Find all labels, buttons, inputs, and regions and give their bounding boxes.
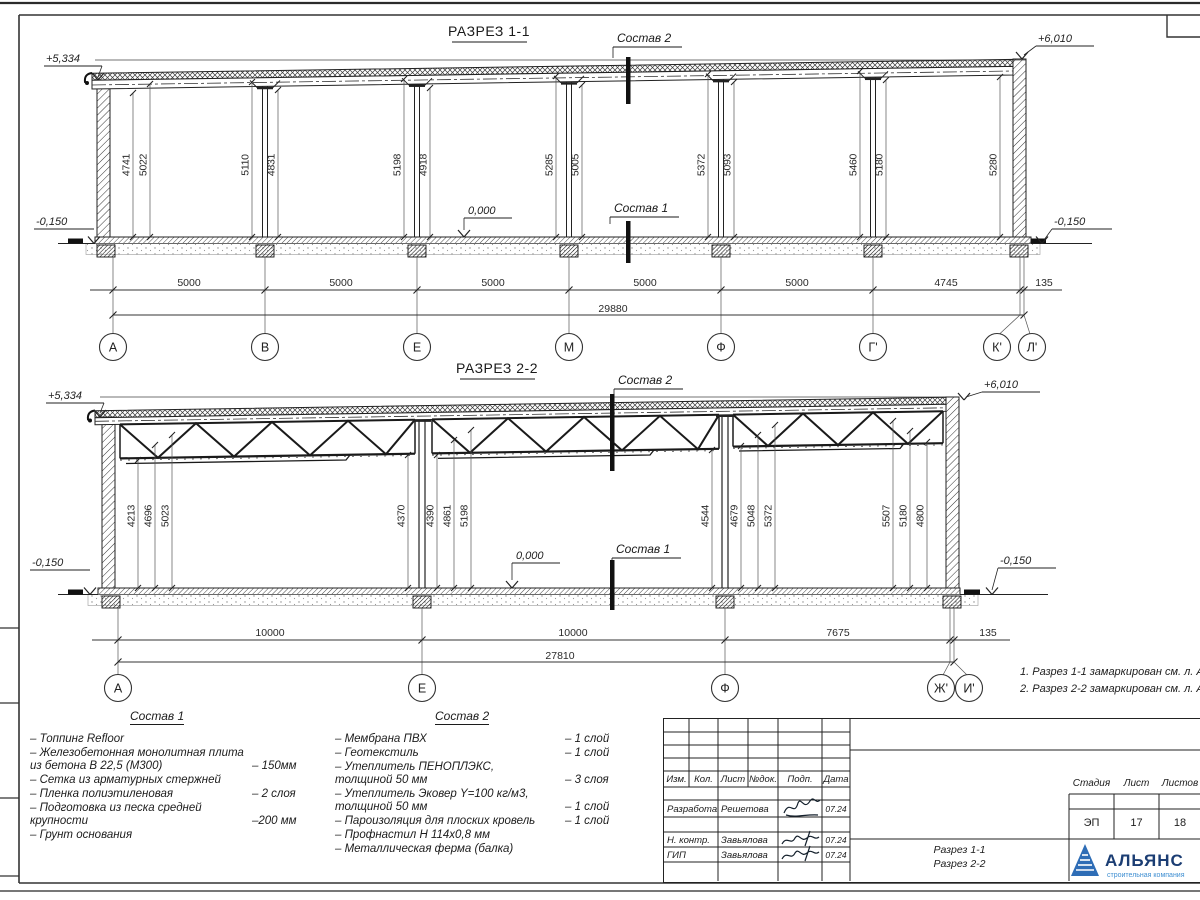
comp-item-text: – Профнастил Н 114х0,8 мм — [335, 829, 565, 842]
comp-item-text: – Пароизоляция для плоских кровель — [335, 815, 565, 828]
wall-right-1 — [1013, 59, 1026, 237]
span-dim: 10000 — [255, 627, 284, 639]
dim: 5198 — [459, 504, 471, 527]
tb-sheet-value: 17 — [1114, 817, 1159, 829]
dim: 4390 — [425, 504, 437, 527]
comp-item-text: – Утеплитель ПЕНОПЛЭКС, толщиной 50 мм — [335, 761, 565, 787]
total-dim-2: 27810 — [545, 650, 574, 662]
wall-left-1 — [97, 80, 110, 237]
axis-bubble: М — [564, 341, 574, 355]
composition-list-2: Состав 2 – Мембрана ПВХ– 1 слой – Геотек… — [335, 710, 635, 857]
tb-role: Н. контр. — [667, 835, 717, 846]
tb-stage-value: ЭП — [1069, 817, 1114, 829]
wall-left-2 — [102, 417, 115, 588]
reference-notes: 1. Разрез 1-1 замаркирован см. л. АР-15 … — [1020, 664, 1200, 702]
logo-subtext: строительная компания — [1107, 872, 1185, 879]
dim: 4679 — [729, 504, 741, 527]
dim: 5023 — [160, 504, 172, 527]
span-dim: 135 — [979, 627, 997, 639]
dim: 4213 — [126, 504, 138, 527]
dim: 5198 — [392, 153, 404, 176]
elev-left-bottom-1: -0,150 — [36, 216, 68, 228]
comp-item-text: – Геотекстиль — [335, 747, 565, 760]
axes-1: А В Е М Ф Г' К' Л' — [100, 315, 1046, 361]
span-dim: 5000 — [329, 277, 353, 289]
title-block: Изм. Кол. Лист №док. Подп. Дата Разработ… — [663, 718, 1200, 883]
composition-1-title: Состав 1 — [130, 710, 184, 725]
comp-item-text: – Топпинг Refloor — [30, 733, 252, 746]
tb-date: 07.24 — [822, 835, 850, 845]
span-dims-1: 5000 5000 5000 5000 5000 4745 135 29880 — [90, 257, 1062, 334]
axis-bubble: Г' — [868, 341, 877, 355]
floor-2 — [58, 588, 1048, 608]
tb-role: Разработал — [667, 804, 717, 815]
axis-bubble: Е — [418, 682, 426, 696]
dim: 4800 — [915, 504, 927, 527]
elev-right-bottom-1: -0,150 — [1054, 216, 1086, 228]
section-2-title: РАЗРЕЗ 2-2 — [456, 360, 538, 376]
elev-left-bottom-2: -0,150 — [32, 557, 64, 569]
elev-floor-1: 0,000 — [468, 205, 496, 217]
wall-right-2 — [946, 397, 959, 588]
span-dim: 135 — [1035, 277, 1053, 289]
floor-1 — [58, 237, 1092, 257]
tb-doc-title-1: Разрез 1-1 — [850, 844, 1069, 856]
span-dim: 10000 — [558, 627, 587, 639]
axis-bubble: Ж' — [934, 682, 948, 696]
svg-text:Состав 2: Состав 2 — [617, 31, 671, 45]
span-dim: 5000 — [785, 277, 809, 289]
dim: 5005 — [570, 153, 582, 176]
tb-date: 07.24 — [822, 850, 850, 860]
axis-bubble: К' — [992, 341, 1002, 355]
tb-name: Завьялова — [721, 850, 776, 861]
svg-text:Состав 2: Состав 2 — [618, 373, 672, 387]
note-line: 2. Разрез 2-2 замаркирован см. л. АР-16 — [1020, 681, 1200, 698]
drawing-sheet: РАЗРЕЗ 1-1 — [0, 0, 1200, 900]
corner-stamp-box — [1167, 15, 1200, 37]
span-dim: 5000 — [633, 277, 657, 289]
comp-item-value: – 2 слоя — [252, 788, 322, 801]
composition-list-1: Состав 1 – Топпинг Refloor – Железобетон… — [30, 710, 322, 843]
axis-bubble: Л' — [1027, 341, 1038, 355]
tb-col-kol: Кол. — [689, 774, 718, 785]
comp-item-text: – Пленка полиэтиленовая — [30, 788, 252, 801]
tb-name: Завьялова — [721, 835, 776, 846]
height-dims-2: 4213 4696 5023 4370 4390 4861 5198 4544 … — [126, 418, 931, 591]
company-logo: АЛЬЯНС строительная компания — [1069, 839, 1200, 882]
comp-item-text: – Сетка из арматурных стержней — [30, 774, 252, 787]
dim: 5110 — [240, 154, 252, 176]
left-margin-cells — [0, 628, 19, 876]
dim: 4831 — [266, 153, 278, 176]
comp-item-value: –200 мм — [252, 815, 322, 828]
dim: 5372 — [763, 504, 775, 527]
comp-item-text: – Мембрана ПВХ — [335, 733, 565, 746]
dim: 4544 — [700, 504, 712, 527]
columns-2 — [413, 415, 734, 588]
signatures — [782, 799, 820, 861]
dim: 4696 — [143, 504, 155, 527]
svg-text:Состав 1: Состав 1 — [616, 542, 670, 556]
composition-2-title: Состав 2 — [435, 710, 489, 725]
tb-col-data: Дата — [822, 774, 850, 785]
dim: 5022 — [138, 153, 150, 176]
comp-item-value: – 1 слой — [565, 801, 635, 814]
comp-item-text: – Железобетонная монолитная плита из бет… — [30, 747, 252, 773]
comp-item-text: – Грунт основания — [30, 829, 252, 842]
span-dim: 5000 — [177, 277, 201, 289]
elev-right-bottom-2: -0,150 — [1000, 555, 1032, 567]
dim: 5093 — [722, 153, 734, 176]
roof-2 — [88, 397, 946, 425]
comp-item-value: – 1 слой — [565, 747, 635, 760]
dim: 5280 — [988, 153, 1000, 176]
dim: 5285 — [544, 153, 556, 176]
elev-floor-2: 0,000 — [516, 550, 544, 562]
dim: 5460 — [848, 153, 860, 176]
span-dim: 7675 — [826, 627, 850, 639]
tb-sheet-label: Лист — [1114, 778, 1159, 789]
axis-bubble: А — [114, 682, 123, 696]
section-2-2: РАЗРЕЗ 2-2 — [30, 360, 1056, 702]
tb-sheets-label: Листов — [1159, 778, 1200, 789]
comp-item-value: – 150мм — [252, 760, 322, 773]
comp-item-text: – Подготовка из песка средней крупности — [30, 802, 252, 828]
tb-stage-label: Стадия — [1069, 778, 1114, 789]
tb-col-podp: Подп. — [778, 774, 822, 785]
dim: 5180 — [898, 504, 910, 527]
comp-item-value: – 1 слой — [565, 733, 635, 746]
tb-col-list: Лист — [718, 774, 748, 785]
dim: 4370 — [396, 504, 408, 527]
logo-text: АЛЬЯНС — [1105, 851, 1184, 870]
dim: 5180 — [874, 153, 886, 176]
signature-gip — [782, 846, 819, 861]
section-1-title: РАЗРЕЗ 1-1 — [448, 23, 530, 39]
comp-item-value: – 1 слой — [565, 815, 635, 828]
tb-col-ndok: №док. — [748, 774, 778, 785]
span-dim: 5000 — [481, 277, 505, 289]
axis-bubble: Ф — [720, 682, 730, 696]
total-dim-1: 29880 — [598, 303, 627, 315]
note-line: 1. Разрез 1-1 замаркирован см. л. АР-15 — [1020, 664, 1200, 681]
axis-bubble: А — [109, 341, 118, 355]
signature-razrabotal — [784, 799, 820, 813]
callout-sostav2-2: Состав 2 — [610, 373, 683, 471]
comp-item-text: – Металлическая ферма (балка) — [335, 843, 565, 856]
elev-right-top-2: +6,010 — [984, 379, 1019, 391]
axis-bubble: Ф — [716, 341, 726, 355]
comp-item-text: – Утеплитель Эковер Y=100 кг/м3, толщино… — [335, 788, 565, 814]
elev-left-top-1: +5,334 — [46, 53, 80, 65]
tb-doc-title-2: Разрез 2-2 — [850, 858, 1069, 870]
dim: 4861 — [442, 504, 454, 527]
svg-text:Состав 1: Состав 1 — [614, 201, 668, 215]
dim: 4741 — [121, 153, 133, 176]
axes-2: А Е Ф Ж' И' — [105, 662, 983, 702]
axis-bubble: И' — [963, 682, 974, 696]
tb-role: ГИП — [667, 850, 717, 861]
dim: 5507 — [881, 504, 893, 527]
comp-item-value: – 3 слоя — [565, 774, 635, 787]
axis-bubble: В — [261, 341, 269, 355]
elev-right-top-1: +6,010 — [1038, 33, 1073, 45]
axis-bubble: Е — [413, 341, 421, 355]
span-dim: 4745 — [934, 277, 958, 289]
tb-date: 07.24 — [822, 804, 850, 814]
signature-nkontr — [782, 831, 819, 846]
roof-1 — [85, 59, 1013, 89]
dim: 5048 — [746, 504, 758, 527]
tb-name: Решетова — [721, 804, 776, 815]
tb-col-izm: Изм. — [664, 774, 689, 785]
dim: 5372 — [696, 153, 708, 176]
section-1-1: РАЗРЕЗ 1-1 — [34, 23, 1112, 361]
span-dims-2: 10000 10000 7675 135 27810 — [92, 608, 1010, 675]
dim: 4918 — [418, 153, 430, 176]
tb-sheets-value: 18 — [1159, 817, 1200, 829]
elev-left-top-2: +5,334 — [48, 390, 82, 402]
